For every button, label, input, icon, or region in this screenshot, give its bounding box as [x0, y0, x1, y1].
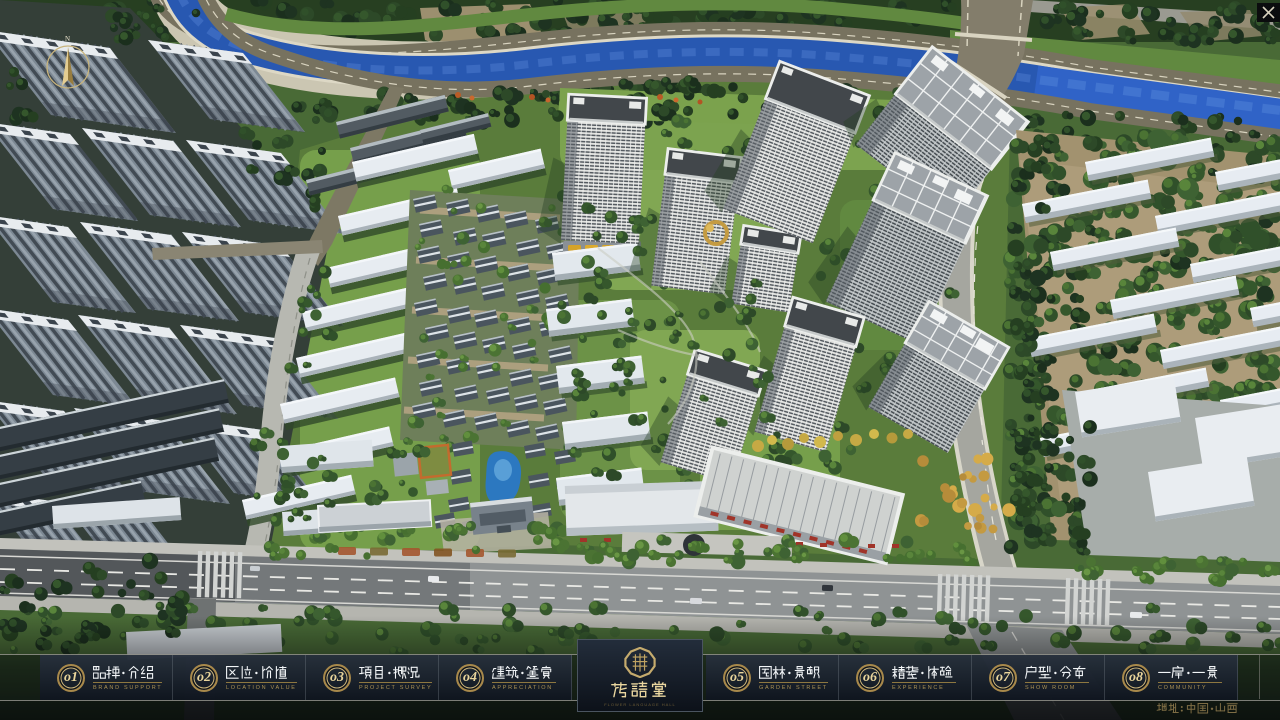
svg-text:N: N — [65, 35, 70, 43]
